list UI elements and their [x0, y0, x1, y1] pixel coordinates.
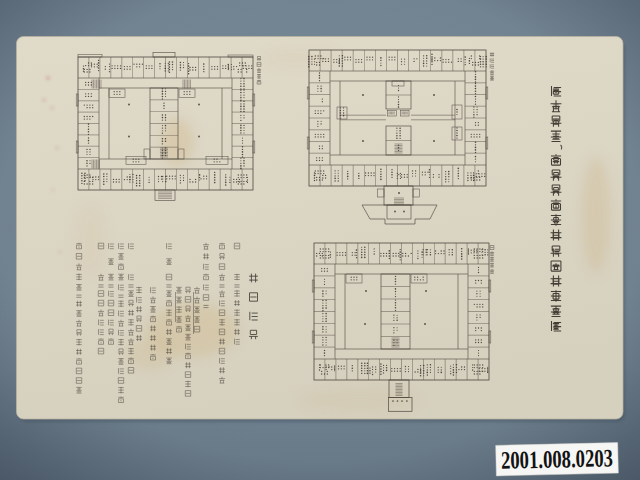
svg-text:2001.008.0203: 2001.008.0203 [501, 444, 614, 474]
